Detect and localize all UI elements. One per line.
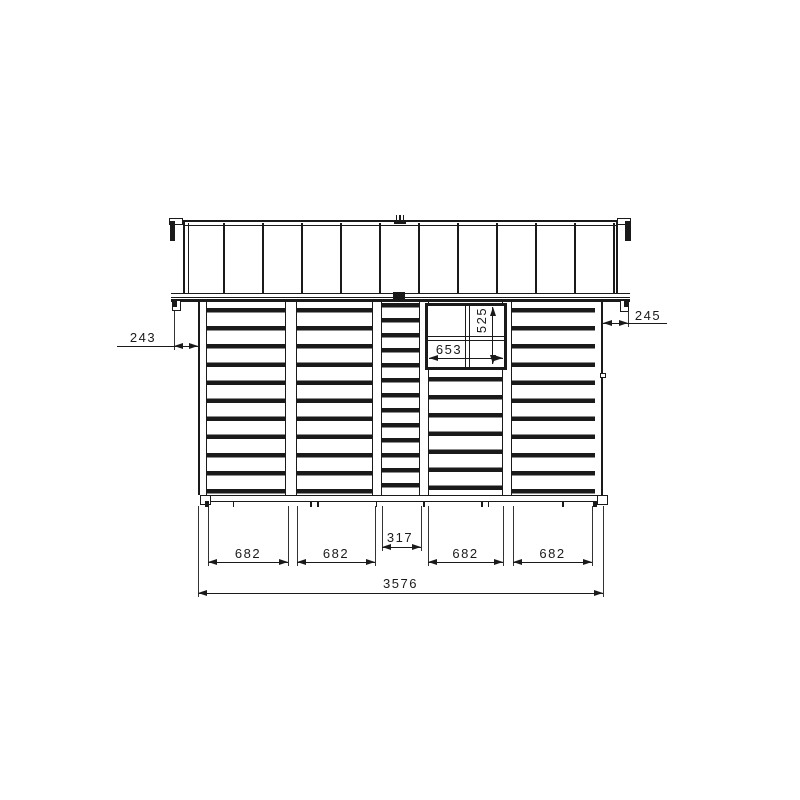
base-tick-mark [317, 501, 319, 507]
shed-elevation-drawing: 525 6826823176826823576243245653 [0, 0, 800, 800]
dimension-arrow [174, 343, 183, 349]
base-tick-mark [310, 501, 312, 507]
base-tick-mark [233, 501, 235, 507]
base-tick-mark [205, 501, 209, 507]
dim-label-bottom_segments-4: 682 [513, 547, 592, 561]
dim-label-right_overhang: 245 [626, 309, 670, 323]
dimension-arrow [382, 544, 391, 550]
base-tick-mark [593, 501, 597, 507]
dim-label-bottom_segments-1: 682 [297, 547, 375, 561]
dimension-arrow [412, 544, 421, 550]
dimension-line [117, 346, 198, 347]
dim-label-window_w: 653 [426, 343, 472, 357]
dimension-line [603, 323, 667, 324]
dim-label-total_width: 3576 [198, 577, 603, 591]
dimension-annotations: 6826823176826823576243245653 [0, 0, 800, 800]
base-tick-mark [562, 501, 564, 507]
dimension-line [198, 593, 603, 594]
base-tick-mark [376, 501, 378, 507]
dimension-arrow [603, 320, 612, 326]
dimension-line [513, 562, 592, 563]
dim-label-bottom_segments-0: 682 [208, 547, 288, 561]
dimension-line [208, 562, 288, 563]
dimension-arrow [494, 355, 503, 361]
dimension-line [429, 358, 503, 359]
dim-label-bottom_segments-3: 682 [428, 547, 503, 561]
dimension-arrow [189, 343, 198, 349]
base-tick-mark [488, 501, 490, 507]
dimension-line [297, 562, 375, 563]
base-tick-mark [423, 501, 425, 507]
base-tick-mark [481, 501, 483, 507]
dim-label-left_overhang: 243 [112, 331, 174, 345]
dimension-line [428, 562, 503, 563]
dim-label-bottom_segments-2: 317 [378, 531, 422, 545]
